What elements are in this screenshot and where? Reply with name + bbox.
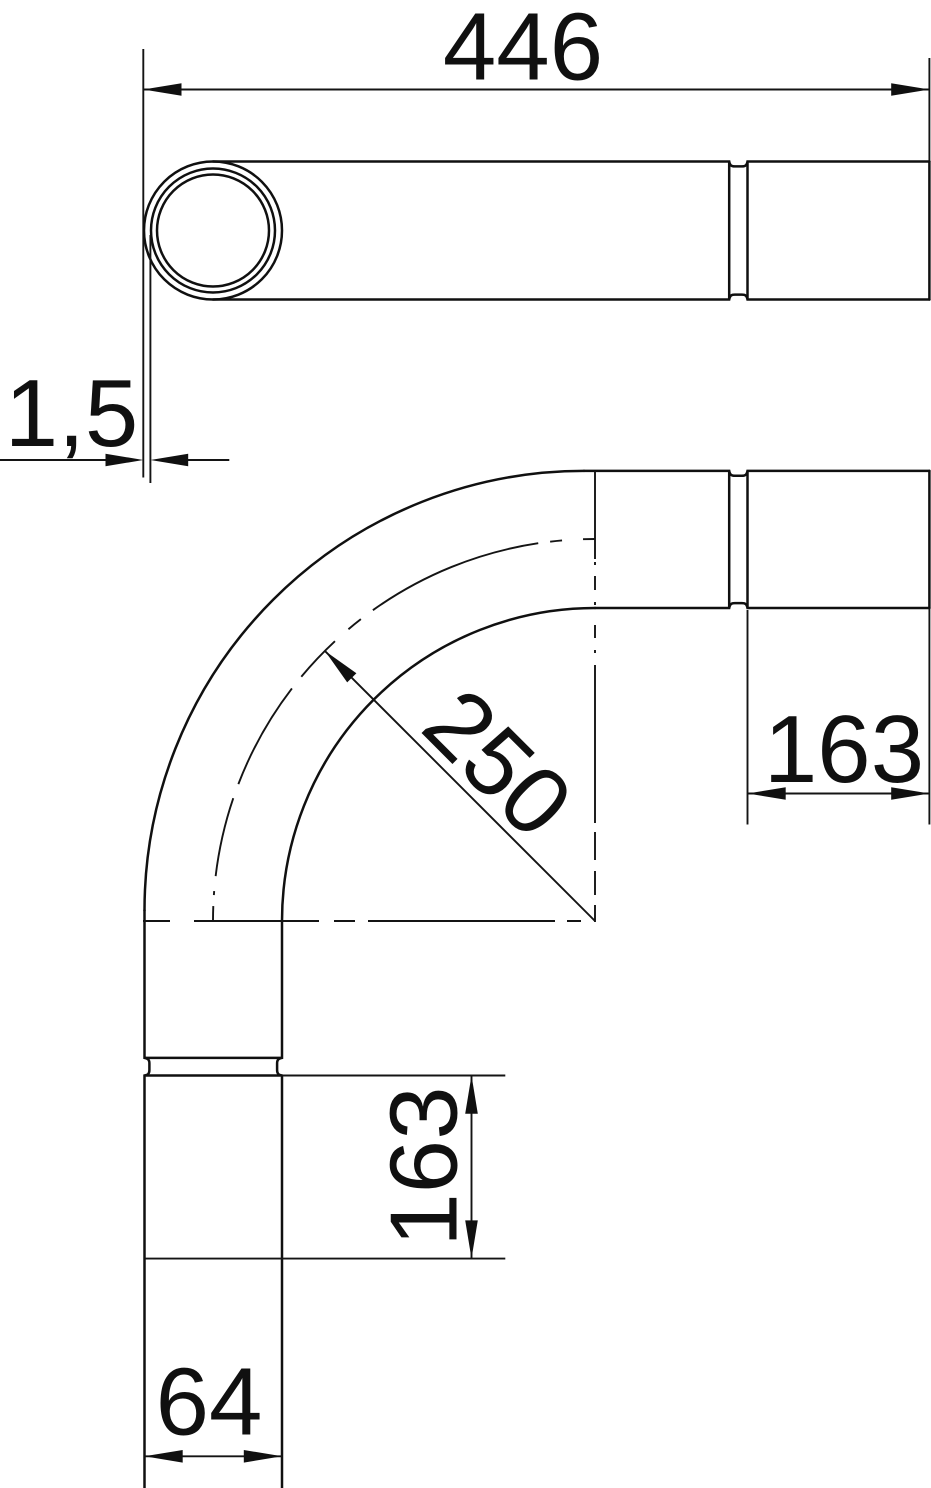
svg-text:163: 163	[370, 1086, 477, 1246]
svg-text:250: 250	[403, 669, 592, 858]
svg-text:163: 163	[764, 696, 924, 803]
svg-text:1,5: 1,5	[5, 360, 138, 467]
svg-text:64: 64	[156, 1349, 263, 1456]
svg-text:446: 446	[443, 0, 603, 101]
